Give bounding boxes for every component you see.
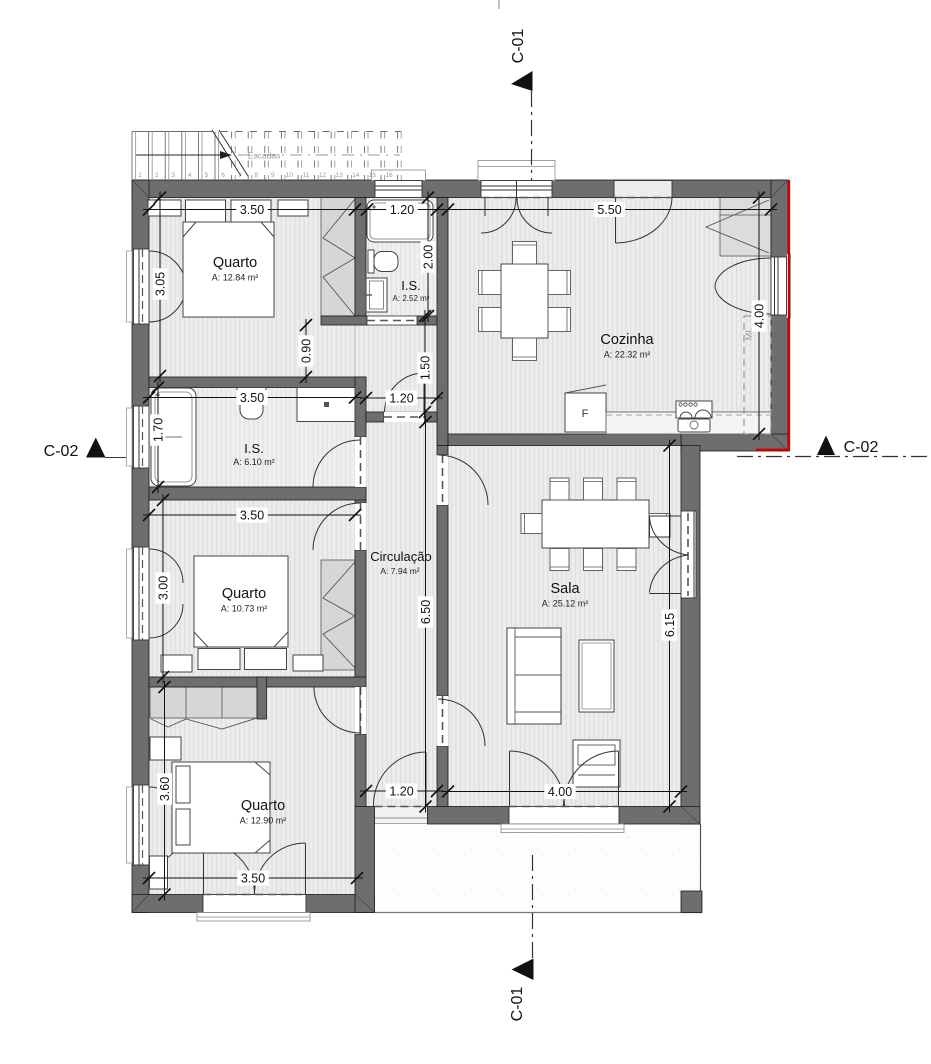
svg-text:1.20: 1.20 xyxy=(389,785,413,799)
svg-text:6: 6 xyxy=(221,172,225,179)
svg-text:1.20: 1.20 xyxy=(390,203,414,217)
svg-text:A: 25.12 m²: A: 25.12 m² xyxy=(542,599,589,609)
svg-text:3.50: 3.50 xyxy=(240,509,264,523)
svg-text:6.15: 6.15 xyxy=(663,613,677,637)
svg-text:4: 4 xyxy=(188,172,192,179)
svg-text:3.00: 3.00 xyxy=(157,576,171,600)
svg-text:A: 12.84 m²: A: 12.84 m² xyxy=(212,273,259,283)
svg-text:3.50: 3.50 xyxy=(240,203,264,217)
svg-text:C-01: C-01 xyxy=(510,29,527,64)
svg-text:13: 13 xyxy=(336,172,344,179)
svg-text:3: 3 xyxy=(171,172,175,179)
svg-text:C-01: C-01 xyxy=(509,987,526,1022)
svg-text:Quarto: Quarto xyxy=(213,255,257,271)
svg-text:F: F xyxy=(582,408,589,420)
svg-text:Quarto: Quarto xyxy=(222,586,266,602)
svg-text:1: 1 xyxy=(138,172,142,179)
svg-text:Escadas: Escadas xyxy=(248,151,281,161)
svg-text:10: 10 xyxy=(286,172,294,179)
svg-text:A: 2.52 m²: A: 2.52 m² xyxy=(393,294,430,303)
svg-text:4.00: 4.00 xyxy=(548,785,572,799)
svg-text:A: 22.32 m²: A: 22.32 m² xyxy=(604,350,651,360)
svg-text:A: 7.94 m²: A: 7.94 m² xyxy=(380,566,419,576)
svg-text:3.50: 3.50 xyxy=(240,391,264,405)
svg-text:3.50: 3.50 xyxy=(241,872,265,886)
svg-text:16: 16 xyxy=(385,172,393,179)
svg-text:Circulação: Circulação xyxy=(370,549,431,564)
svg-text:Cozinha: Cozinha xyxy=(600,332,654,348)
svg-text:3.60: 3.60 xyxy=(158,777,172,801)
svg-text:8: 8 xyxy=(254,172,258,179)
svg-text:1.50: 1.50 xyxy=(419,356,433,380)
svg-text:3.05: 3.05 xyxy=(154,272,168,296)
svg-text:C-02: C-02 xyxy=(844,439,879,456)
svg-text:6.50: 6.50 xyxy=(419,600,433,624)
svg-text:14: 14 xyxy=(352,172,360,179)
svg-text:A: 10.73 m²: A: 10.73 m² xyxy=(221,604,268,614)
svg-text:Quarto: Quarto xyxy=(241,798,285,814)
svg-text:5.50: 5.50 xyxy=(597,203,621,217)
svg-text:7: 7 xyxy=(238,172,242,179)
svg-text:4.00: 4.00 xyxy=(753,304,767,328)
svg-text:2: 2 xyxy=(155,172,159,179)
svg-text:Sala: Sala xyxy=(550,581,580,597)
svg-text:I.S.: I.S. xyxy=(244,441,264,456)
svg-text:1.20: 1.20 xyxy=(389,392,413,406)
svg-text:11: 11 xyxy=(303,172,310,179)
svg-text:I.S.: I.S. xyxy=(401,278,421,293)
svg-text:2.00: 2.00 xyxy=(422,245,436,269)
svg-text:9: 9 xyxy=(271,172,275,179)
svg-text:15: 15 xyxy=(369,172,377,179)
svg-text:0.90: 0.90 xyxy=(300,339,314,363)
svg-text:1.70: 1.70 xyxy=(152,418,166,442)
svg-text:A: 6.10 m²: A: 6.10 m² xyxy=(233,457,275,467)
svg-text:C-02: C-02 xyxy=(44,443,79,460)
svg-text:12: 12 xyxy=(319,172,327,179)
svg-text:A: 12.90 m²: A: 12.90 m² xyxy=(240,816,287,826)
svg-text:5: 5 xyxy=(205,172,209,179)
